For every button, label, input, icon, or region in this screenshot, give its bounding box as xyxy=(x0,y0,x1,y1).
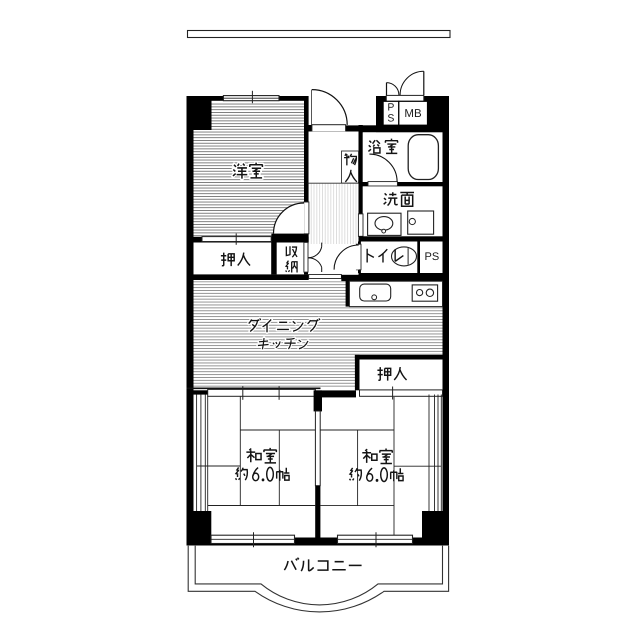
svg-text:S: S xyxy=(387,113,394,125)
svg-text:PS: PS xyxy=(425,251,440,263)
svg-text:MB: MB xyxy=(404,108,422,120)
